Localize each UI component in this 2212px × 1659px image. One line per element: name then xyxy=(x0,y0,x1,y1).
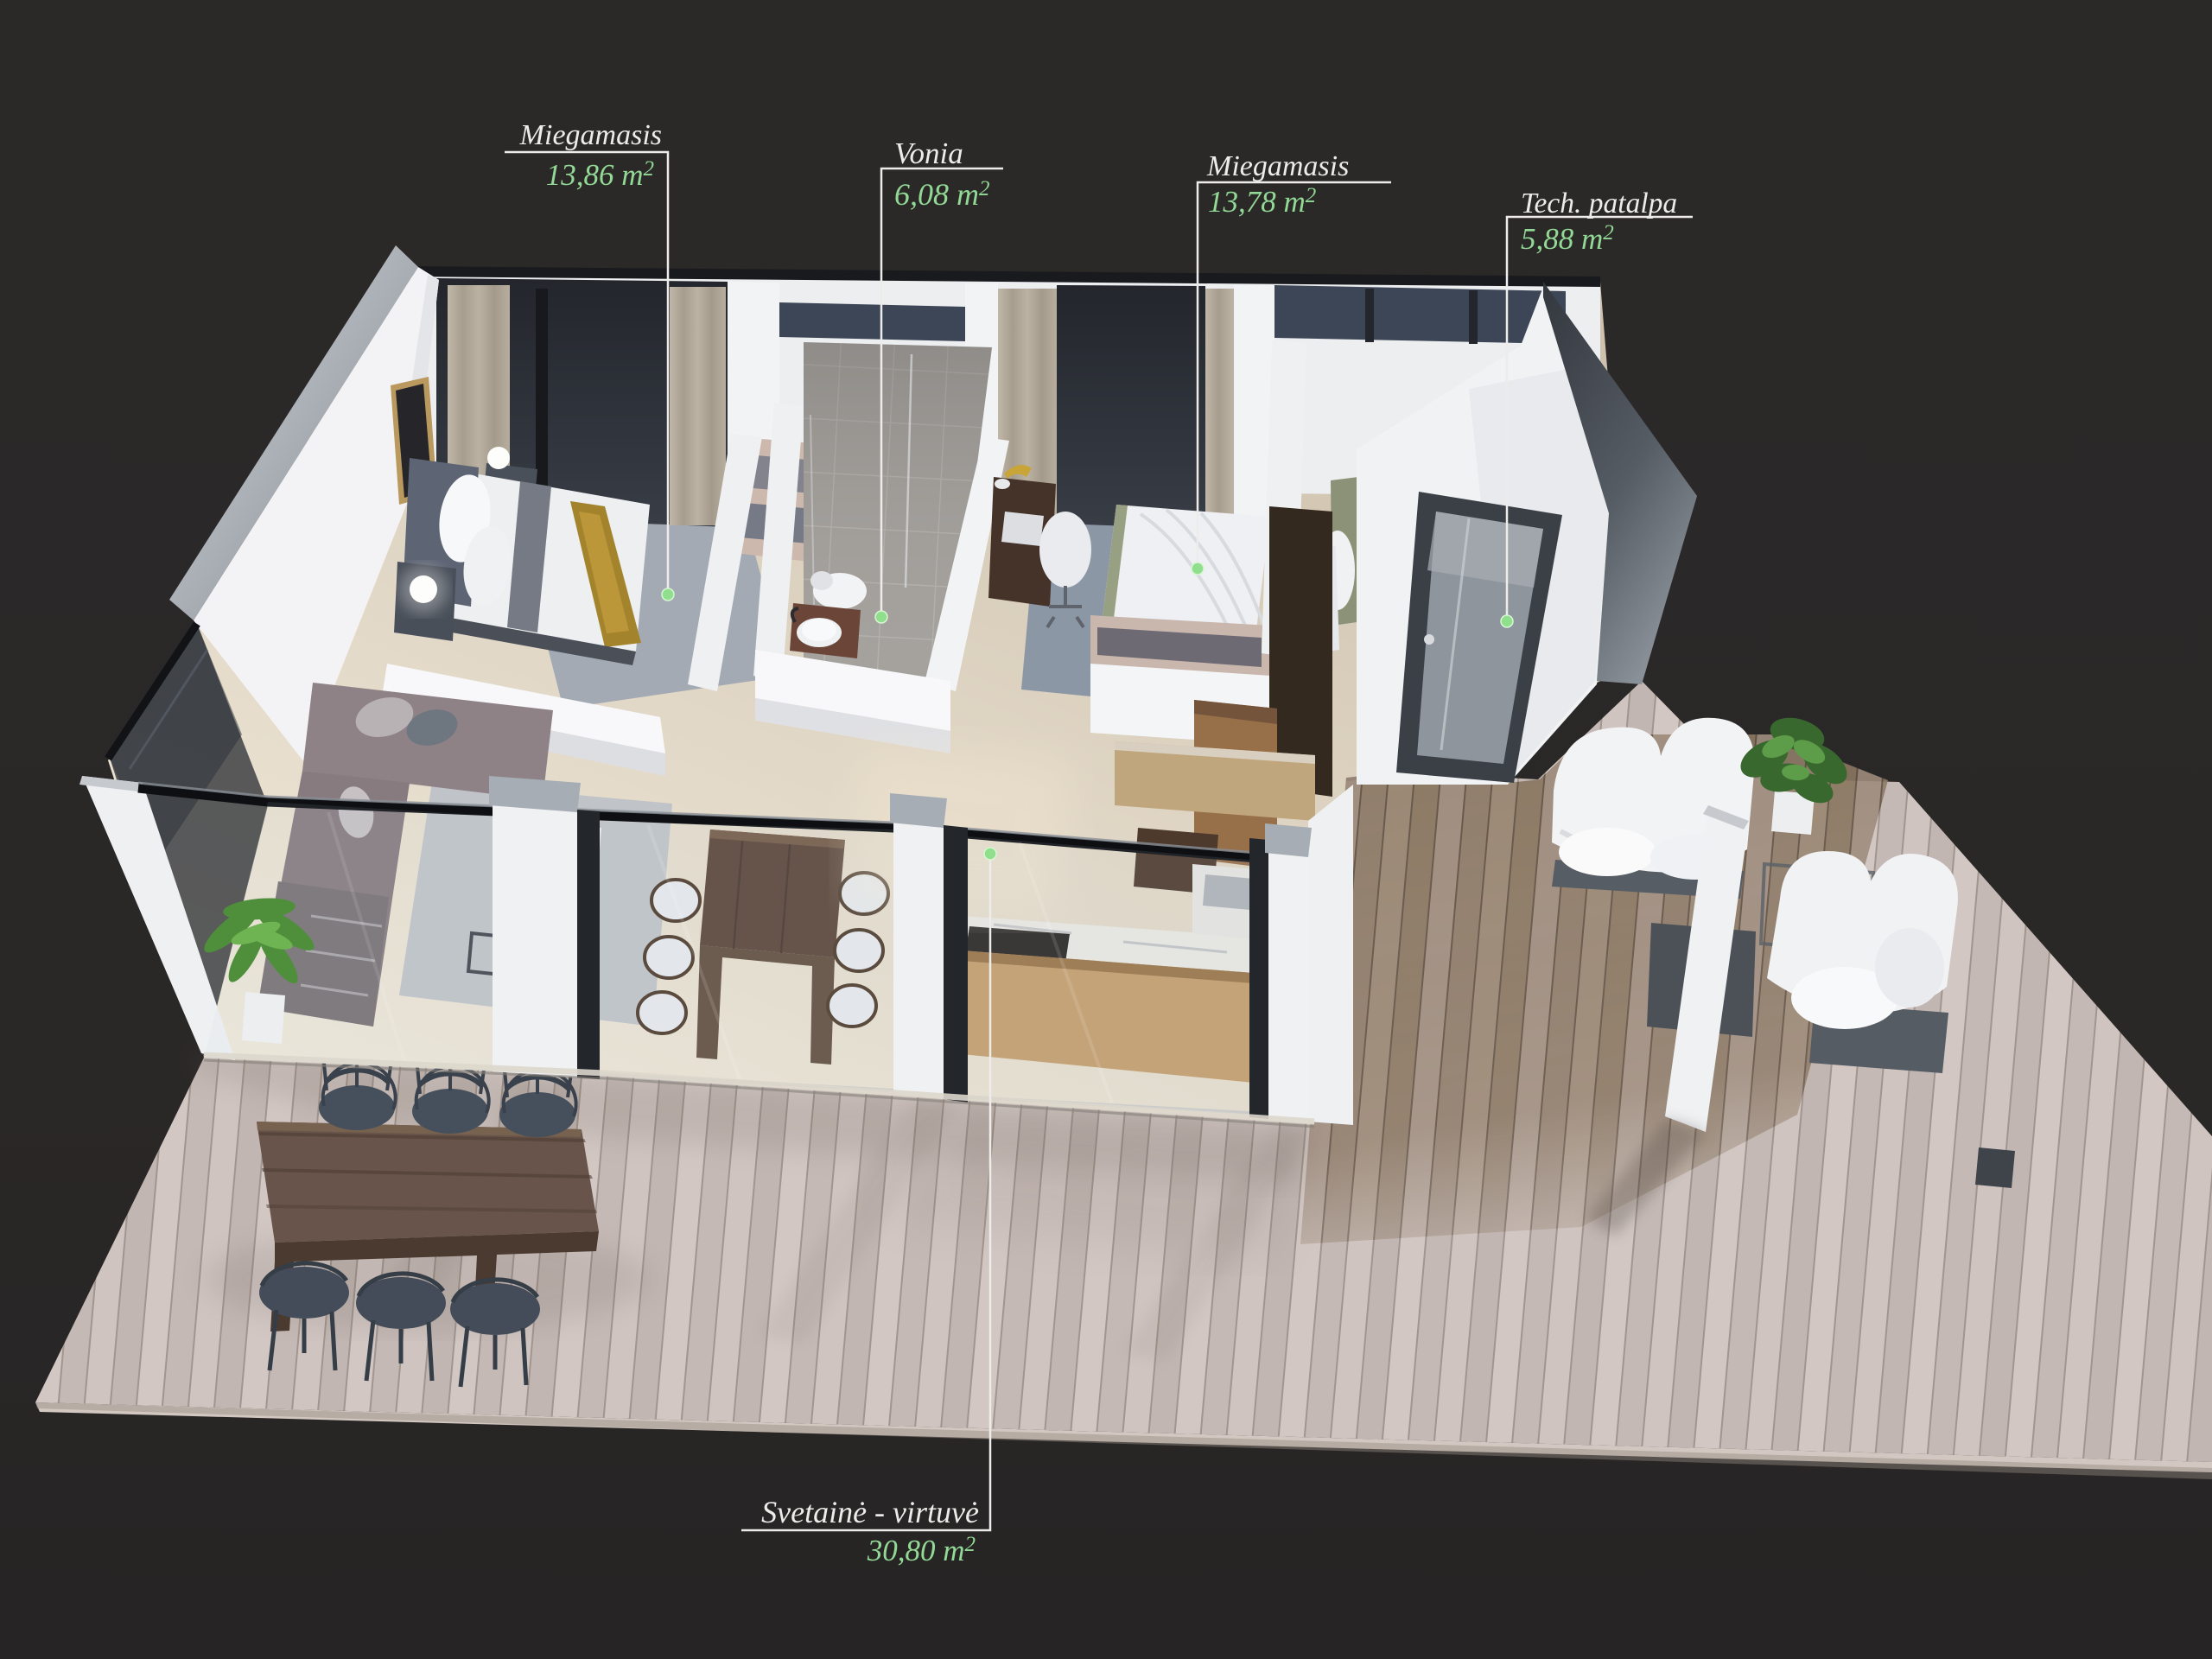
svg-text:Vonia: Vonia xyxy=(894,137,963,170)
svg-text:Miegamasis: Miegamasis xyxy=(519,119,662,151)
svg-text:13,78 m2: 13,78 m2 xyxy=(1208,184,1316,219)
svg-text:13,86 m2: 13,86 m2 xyxy=(546,157,654,192)
svg-text:30,80 m2: 30,80 m2 xyxy=(867,1533,976,1567)
svg-text:Miegamasis: Miegamasis xyxy=(1206,150,1349,182)
svg-text:6,08 m2: 6,08 m2 xyxy=(894,177,990,212)
svg-text:Tech. patalpa: Tech. patalpa xyxy=(1521,188,1677,219)
svg-text:Svetainė - virtuvė: Svetainė - virtuvė xyxy=(761,1495,979,1529)
svg-text:5,88 m2: 5,88 m2 xyxy=(1521,221,1614,256)
